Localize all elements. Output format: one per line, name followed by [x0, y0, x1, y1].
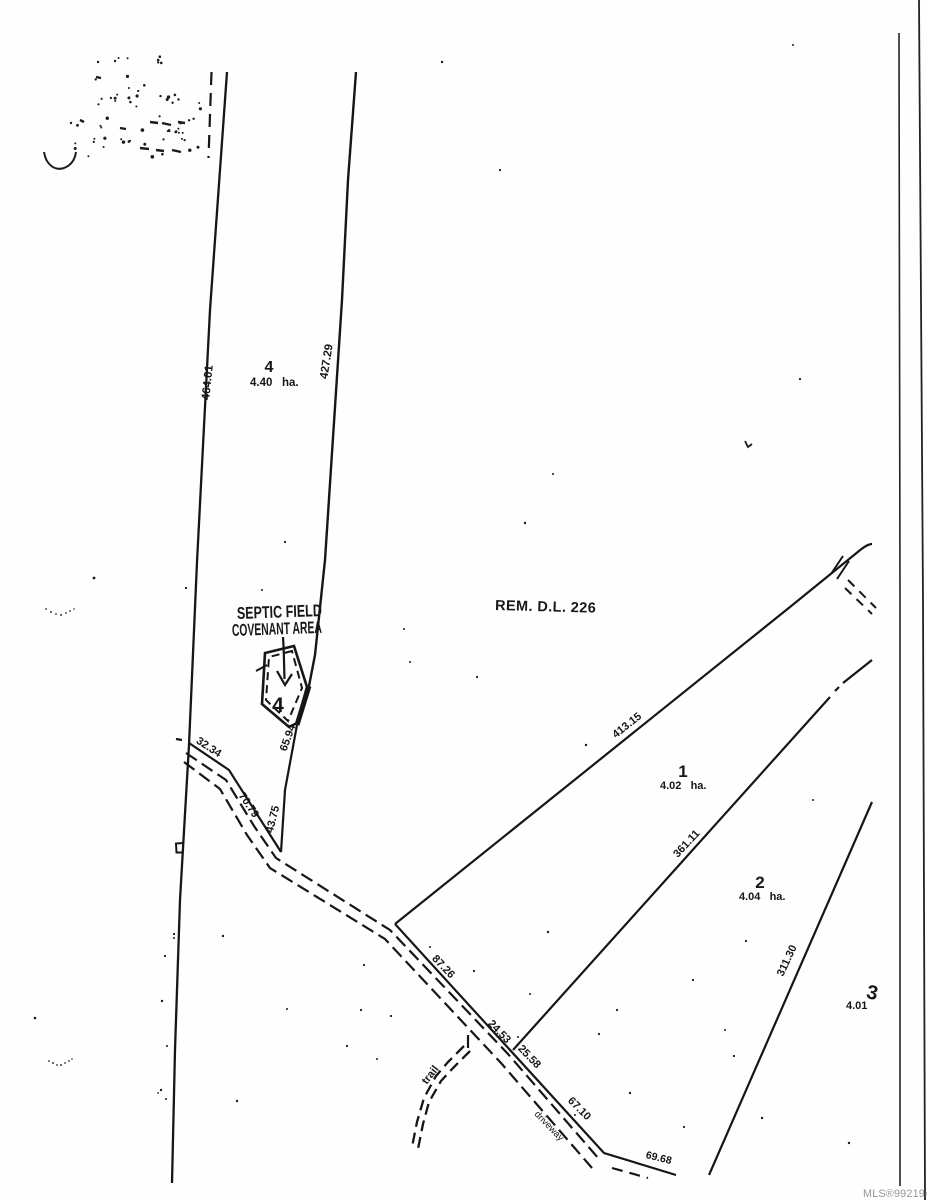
svg-text:1: 1: [678, 762, 687, 781]
svg-text:REM. D.L. 226: REM. D.L. 226: [495, 598, 596, 617]
svg-text:4.02 ha.: 4.02 ha.: [660, 780, 706, 792]
svg-text:4.01: 4.01: [846, 1000, 867, 1012]
svg-text:4: 4: [272, 694, 284, 717]
svg-text:4.40 ha.: 4.40 ha.: [250, 377, 299, 389]
svg-text:4: 4: [265, 359, 274, 376]
svg-text:COVENANT AREA: COVENANT AREA: [232, 618, 323, 640]
svg-text:2: 2: [755, 873, 764, 892]
svg-text:4.04 ha.: 4.04 ha.: [739, 891, 785, 903]
svg-text:MLS®992194: MLS®992194: [863, 1188, 927, 1200]
